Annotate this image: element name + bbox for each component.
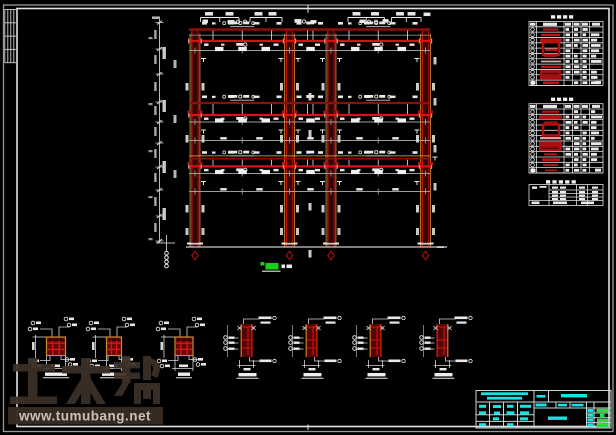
svg-text:www.tumubang.net: www.tumubang.net	[18, 409, 151, 424]
